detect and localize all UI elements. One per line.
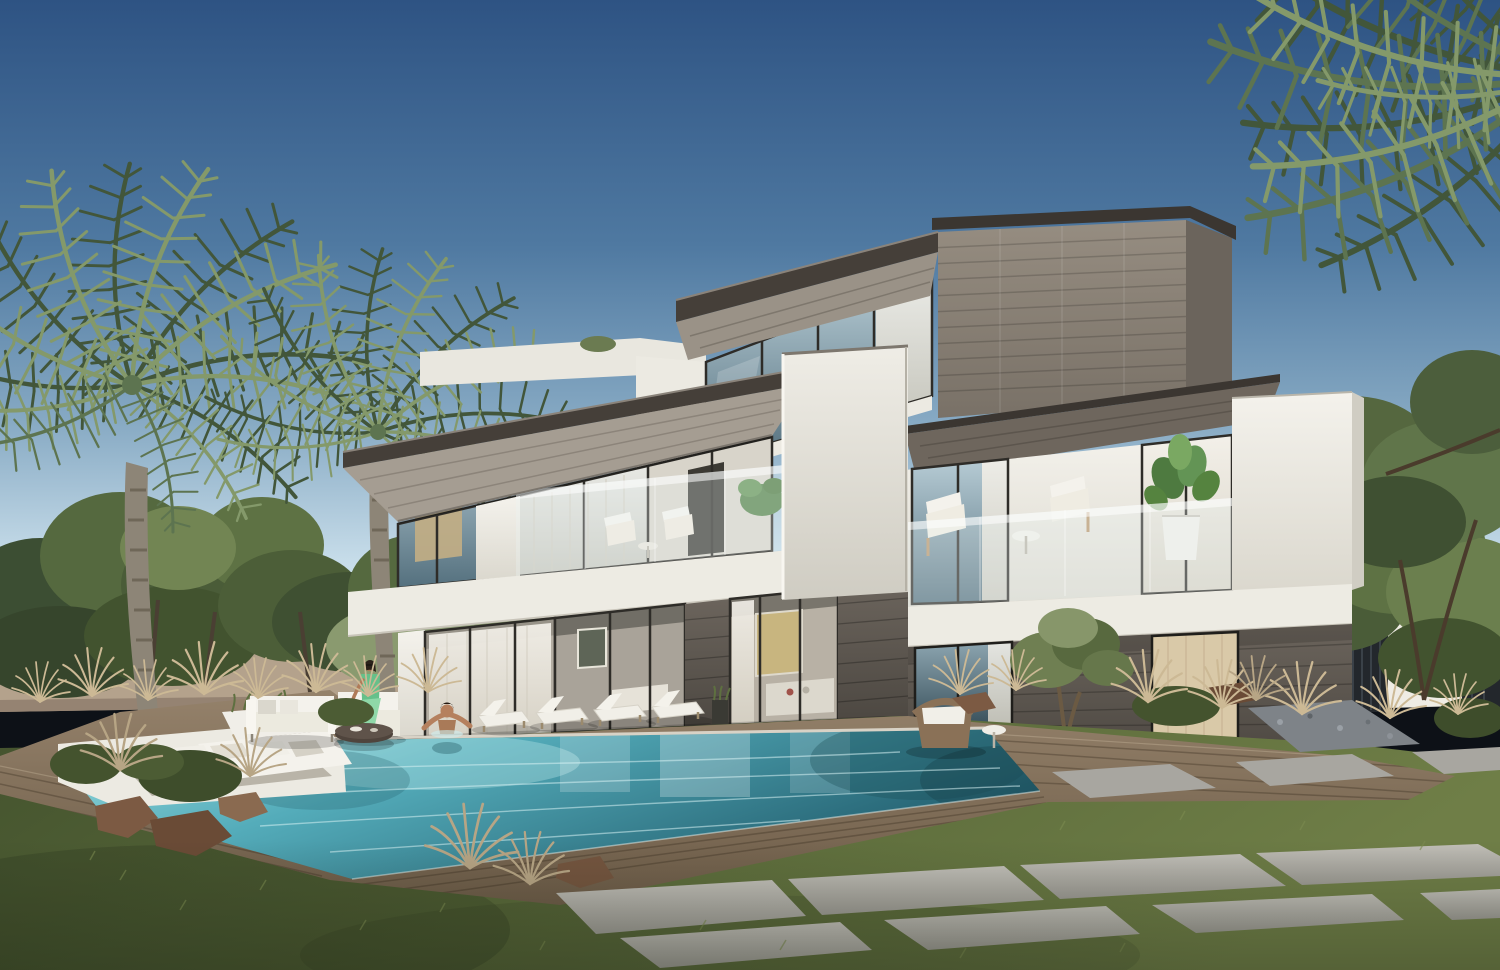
dark-planter [712, 700, 728, 724]
stone-pier-center [838, 582, 908, 720]
foreground-vignette [0, 840, 1500, 970]
center-volume [782, 346, 908, 600]
coffee-table [334, 723, 394, 751]
white-pier [476, 496, 520, 580]
villa-render-image [0, 0, 1500, 970]
villa-render [0, 0, 1500, 970]
right-corner-box [1232, 392, 1352, 590]
